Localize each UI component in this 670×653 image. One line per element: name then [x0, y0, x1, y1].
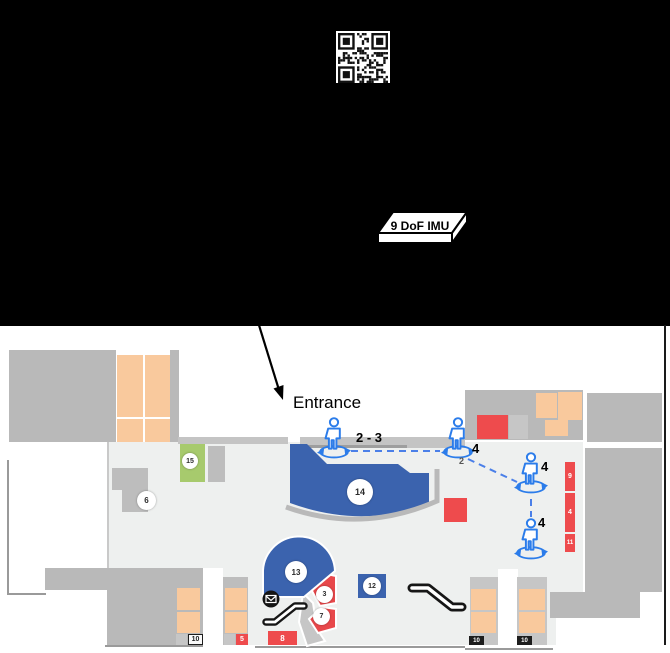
- strip-4: 4: [565, 493, 575, 532]
- room-number-ghost-2: 2: [459, 456, 464, 466]
- entrance-arrow: [250, 296, 284, 400]
- escalator-icon-small: [266, 606, 304, 622]
- strip-11: 11: [565, 534, 575, 552]
- figure-canvas: 9 DoF IMU: [0, 0, 670, 653]
- room-circle-13: 13: [285, 561, 307, 583]
- person-marker-1: [317, 418, 351, 457]
- escalator-icon-large: [412, 588, 462, 607]
- imu-front-face: [378, 233, 452, 243]
- person-marker-2: [441, 418, 475, 457]
- mail-icon: [263, 591, 280, 608]
- room-circle-7: 7: [313, 608, 330, 625]
- path-label-4: 4: [538, 515, 545, 530]
- label-box-10-b: 10: [517, 636, 532, 645]
- label-box-8: 8: [268, 631, 297, 645]
- label-box-10-a: 10: [469, 636, 484, 645]
- overlay-graphics: 9 DoF IMU: [0, 0, 670, 653]
- label-box-10-left: 10: [188, 634, 203, 645]
- entrance-label: Entrance: [293, 393, 361, 413]
- path-label-3: 4: [541, 459, 548, 474]
- room-circle-3: 3: [316, 586, 333, 603]
- room-circle-12: 12: [363, 577, 381, 595]
- label-box-5: 5: [236, 634, 248, 645]
- imu-label: 9 DoF IMU: [391, 219, 450, 233]
- strip-9: 9: [565, 462, 575, 491]
- room-circle-14: 14: [347, 479, 373, 505]
- path-label-2: 4: [472, 441, 479, 456]
- room-circle-6: 6: [137, 491, 156, 510]
- room-circle-15: 15: [182, 453, 198, 469]
- path-label-1: 2 - 3: [356, 430, 382, 445]
